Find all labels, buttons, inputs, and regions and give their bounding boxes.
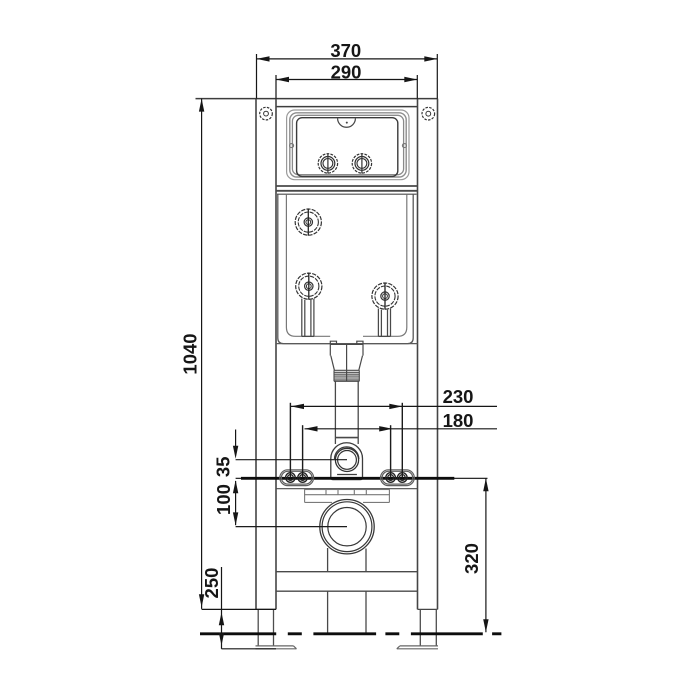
svg-text:250: 250 <box>201 568 222 599</box>
svg-text:180: 180 <box>443 410 474 431</box>
svg-text:290: 290 <box>331 62 362 83</box>
svg-text:35: 35 <box>212 457 233 478</box>
svg-text:100: 100 <box>213 484 234 515</box>
svg-text:230: 230 <box>443 386 474 407</box>
svg-text:370: 370 <box>330 40 361 61</box>
svg-text:1040: 1040 <box>179 333 200 374</box>
svg-text:320: 320 <box>461 543 482 574</box>
